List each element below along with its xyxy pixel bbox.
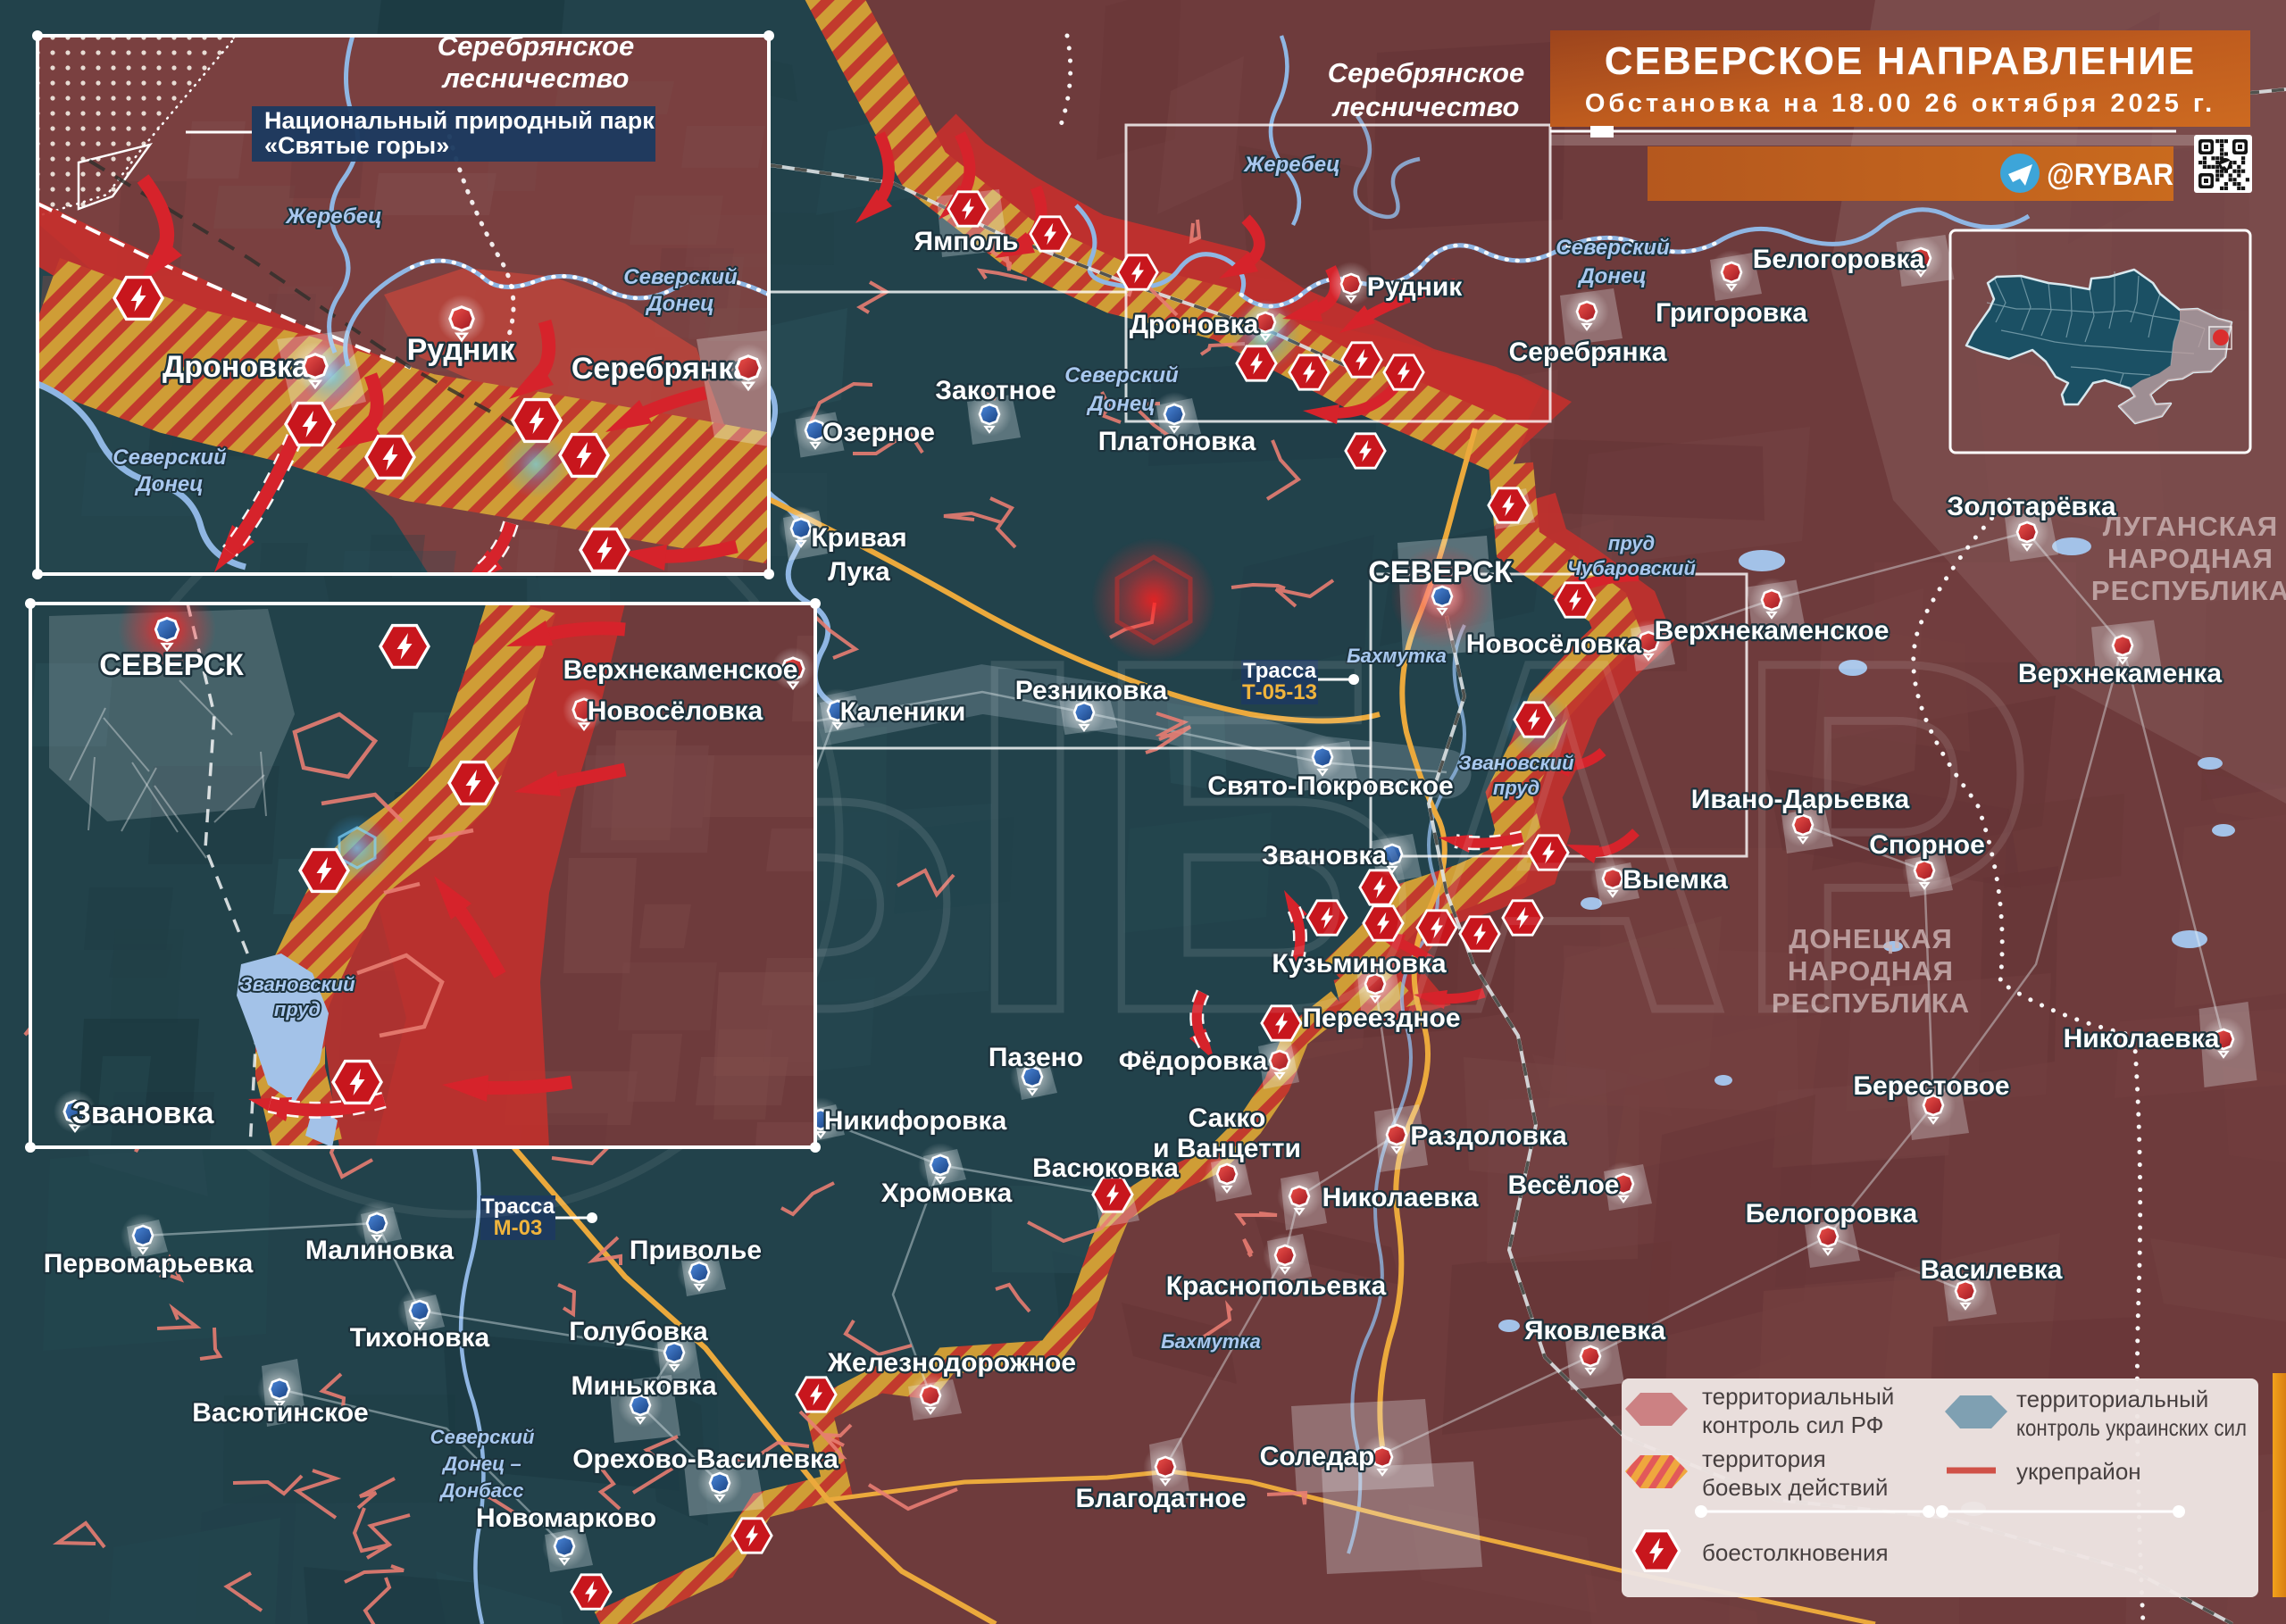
svg-text:Новосёловка: Новосёловка xyxy=(588,696,763,726)
svg-text:Николаевка: Николаевка xyxy=(1322,1183,1479,1212)
svg-text:пруд: пруд xyxy=(274,998,321,1020)
svg-text:СЕВЕРСКОЕ НАПРАВЛЕНИЕ: СЕВЕРСКОЕ НАПРАВЛЕНИЕ xyxy=(1605,39,2196,83)
svg-text:Жеребец: Жеребец xyxy=(1242,153,1339,177)
svg-text:лесничество: лесничество xyxy=(441,62,630,94)
svg-text:Звановский: Звановский xyxy=(239,973,355,995)
svg-text:Серебрянское: Серебрянское xyxy=(1328,57,1524,88)
svg-text:Голубовка: Голубовка xyxy=(569,1317,708,1346)
svg-text:территориальный: территориальный xyxy=(2016,1386,2208,1412)
svg-text:Соледар: Соледар xyxy=(1260,1442,1375,1471)
svg-text:Миньковка: Миньковка xyxy=(571,1371,716,1401)
svg-text:Верхнекаменское: Верхнекаменское xyxy=(563,655,798,685)
svg-text:боевых действий: боевых действий xyxy=(1702,1474,1888,1501)
svg-text:Васютинское: Васютинское xyxy=(192,1398,368,1428)
svg-text:Яковлевка: Яковлевка xyxy=(1524,1316,1665,1345)
svg-text:РЕСПУБЛИКА: РЕСПУБЛИКА xyxy=(2091,575,2286,606)
svg-text:Донец –: Донец – xyxy=(441,1453,521,1475)
svg-text:Донец: Донец xyxy=(645,292,713,316)
svg-text:НАРОДНАЯ: НАРОДНАЯ xyxy=(2107,543,2273,574)
svg-text:Северский: Северский xyxy=(1556,236,1670,260)
svg-text:Дроновка: Дроновка xyxy=(1130,310,1259,339)
svg-text:Белогоровка: Белогоровка xyxy=(1753,245,1925,274)
svg-text:Донбасс: Донбасс xyxy=(439,1479,524,1502)
svg-text:лесничество: лесничество xyxy=(1331,91,1520,122)
svg-text:Верхнекаменка: Верхнекаменка xyxy=(2018,659,2222,688)
svg-text:Раздоловка: Раздоловка xyxy=(1410,1121,1567,1151)
svg-text:Платоновка: Платоновка xyxy=(1098,427,1256,456)
svg-text:@RYBAR: @RYBAR xyxy=(2047,158,2173,192)
svg-text:Васюковка: Васюковка xyxy=(1032,1153,1179,1183)
svg-text:Донец: Донец xyxy=(1086,392,1155,416)
svg-text:Николаевка: Николаевка xyxy=(2064,1024,2220,1054)
svg-text:Бахмутка: Бахмутка xyxy=(1161,1330,1261,1353)
svg-text:Национальный природный парк: Национальный природный парк xyxy=(264,107,655,134)
svg-text:М-03: М-03 xyxy=(494,1216,543,1240)
svg-text:Звановка: Звановка xyxy=(72,1096,215,1130)
svg-text:Василевка: Василевка xyxy=(1921,1255,2063,1285)
svg-text:Хромовка: Хромовка xyxy=(881,1178,1013,1208)
svg-text:Закотное: Закотное xyxy=(935,376,1056,405)
svg-text:контроль украинских сил: контроль украинских сил xyxy=(2016,1414,2247,1441)
svg-text:Приволье: Приволье xyxy=(630,1236,762,1265)
svg-text:Донец: Донец xyxy=(134,472,203,496)
svg-text:Серебрянка: Серебрянка xyxy=(1509,337,1667,367)
svg-text:Малиновка: Малиновка xyxy=(305,1236,454,1265)
svg-text:пруд: пруд xyxy=(1608,532,1655,554)
svg-text:«Святые горы»: «Святые горы» xyxy=(264,132,449,159)
svg-text:Тихоновка: Тихоновка xyxy=(350,1323,490,1353)
svg-text:Жеребец: Жеребец xyxy=(284,204,381,229)
svg-text:Орехово-Василевка: Орехово-Василевка xyxy=(572,1445,838,1474)
svg-text:Краснопольевка: Краснопольевка xyxy=(1166,1271,1387,1301)
svg-text:ЛУГАНСКАЯ: ЛУГАНСКАЯ xyxy=(2103,511,2278,542)
svg-text:укрепрайон: укрепрайон xyxy=(2016,1458,2141,1485)
svg-text:Северский: Северский xyxy=(113,446,227,470)
svg-text:контроль сил РФ: контроль сил РФ xyxy=(1702,1412,1883,1438)
svg-text:Северский: Северский xyxy=(623,265,738,289)
svg-text:Озерное: Озерное xyxy=(822,418,935,447)
svg-text:Белогоровка: Белогоровка xyxy=(1746,1199,1918,1228)
svg-text:Ямполь: Ямполь xyxy=(914,227,1019,256)
svg-text:Новомарково: Новомарково xyxy=(476,1503,656,1533)
svg-text:Григоровка: Григоровка xyxy=(1656,298,1807,328)
svg-text:Рудник: Рудник xyxy=(1367,272,1464,302)
svg-text:Первомарьевка: Первомарьевка xyxy=(44,1249,254,1278)
svg-text:Весёлое: Весёлое xyxy=(1508,1170,1620,1200)
svg-text:Северский: Северский xyxy=(430,1426,535,1448)
svg-text:территория: территория xyxy=(1702,1445,1826,1472)
svg-text:Железнодорожное: Железнодорожное xyxy=(827,1348,1076,1378)
svg-text:СЕВЕРСК: СЕВЕРСК xyxy=(99,648,244,682)
svg-text:Донец: Донец xyxy=(1577,264,1646,288)
svg-text:боестолкновения: боестолкновения xyxy=(1702,1539,1889,1566)
svg-text:Дроновка: Дроновка xyxy=(163,350,310,384)
svg-text:Обстановка на 18.00 26 октября: Обстановка на 18.00 26 октября 2025 г. xyxy=(1585,89,2215,118)
svg-text:территориальный: территориальный xyxy=(1702,1383,1894,1410)
svg-text:Золотарёвка: Золотарёвка xyxy=(1947,492,2115,521)
svg-text:Северский: Северский xyxy=(1064,363,1179,387)
svg-text:Благодатное: Благодатное xyxy=(1076,1484,1247,1513)
svg-text:Кривая: Кривая xyxy=(811,523,906,553)
